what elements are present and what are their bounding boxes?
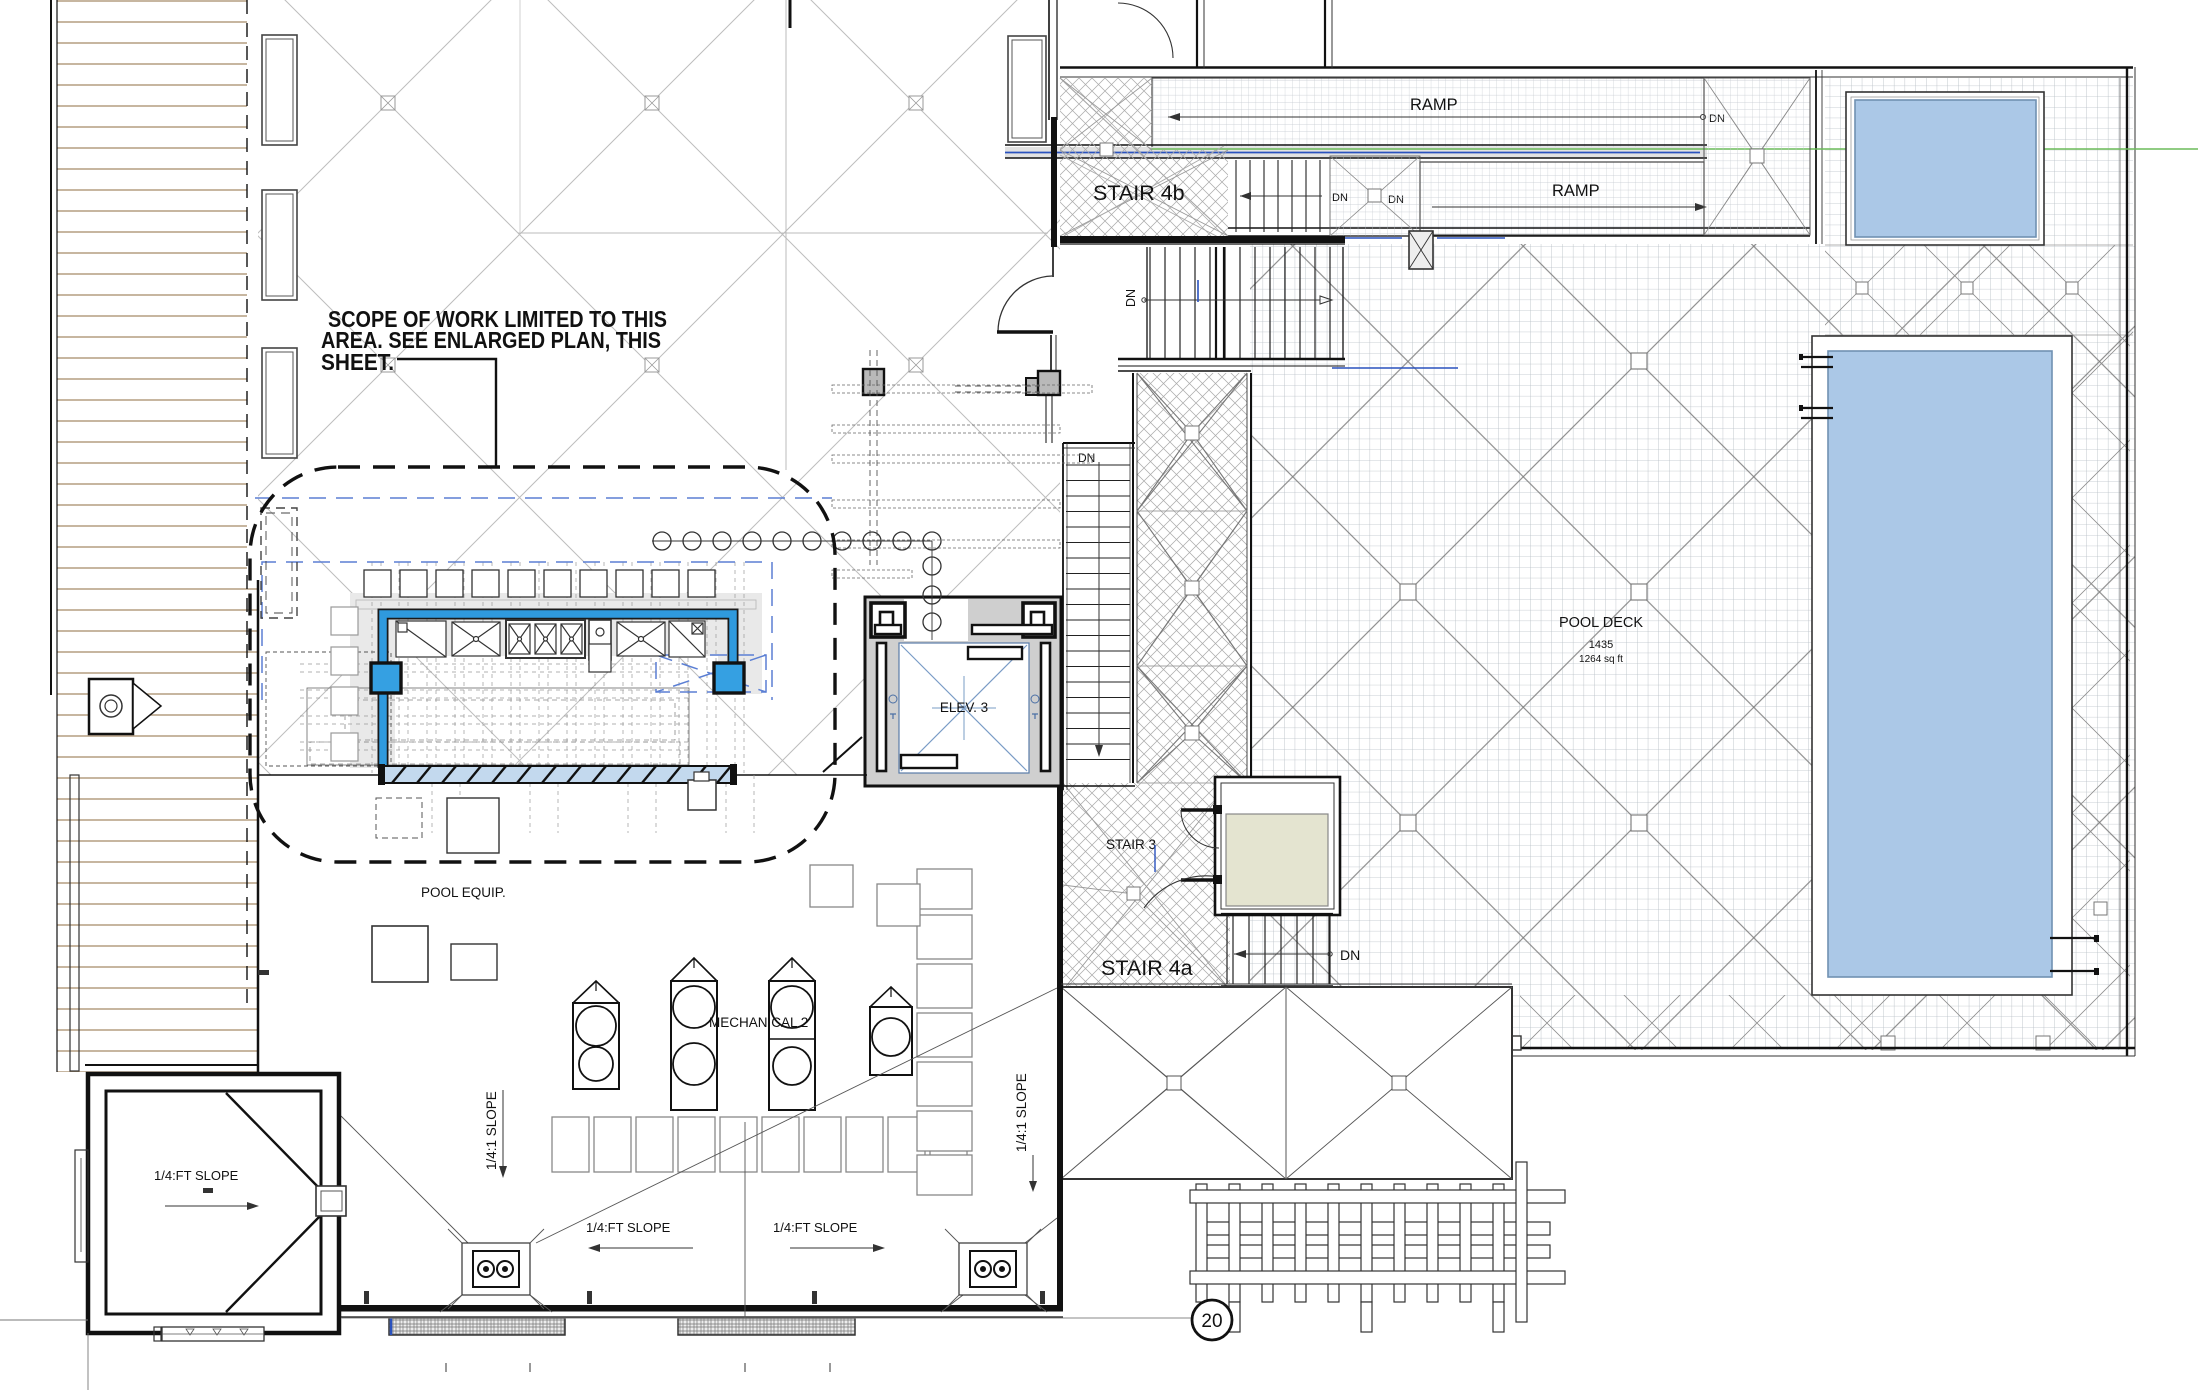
svg-text:MECHANICAL 2: MECHANICAL 2 <box>709 1015 808 1030</box>
svg-text:DN: DN <box>1124 289 1138 307</box>
svg-text:RAMP: RAMP <box>1410 96 1458 114</box>
svg-text:DN: DN <box>1078 451 1095 465</box>
svg-text:1/4:FT SLOPE: 1/4:FT SLOPE <box>154 1168 239 1183</box>
svg-text:STAIR 4a: STAIR 4a <box>1101 956 1193 980</box>
svg-text:RAMP: RAMP <box>1552 182 1600 200</box>
svg-text:DN: DN <box>1332 192 1348 204</box>
svg-text:POOL EQUIP.: POOL EQUIP. <box>421 885 506 900</box>
svg-text:20: 20 <box>1201 1311 1222 1332</box>
svg-text:1435: 1435 <box>1589 639 1613 651</box>
svg-text:1/4:FT SLOPE: 1/4:FT SLOPE <box>586 1220 671 1235</box>
svg-text:1264 sq ft: 1264 sq ft <box>1579 654 1623 665</box>
svg-text:STAIR 4b: STAIR 4b <box>1093 181 1185 205</box>
svg-text:DN: DN <box>1340 947 1360 963</box>
svg-text:SHEET.: SHEET. <box>321 349 394 375</box>
svg-text:1/4:1 SLOPE: 1/4:1 SLOPE <box>484 1091 499 1170</box>
svg-text:1/4:1 SLOPE: 1/4:1 SLOPE <box>1014 1073 1029 1152</box>
svg-text:STAIR 3: STAIR 3 <box>1106 837 1156 852</box>
svg-text:ELEV. 3: ELEV. 3 <box>940 700 988 715</box>
svg-text:1/4:FT SLOPE: 1/4:FT SLOPE <box>773 1220 858 1235</box>
svg-text:POOL DECK: POOL DECK <box>1559 615 1643 631</box>
